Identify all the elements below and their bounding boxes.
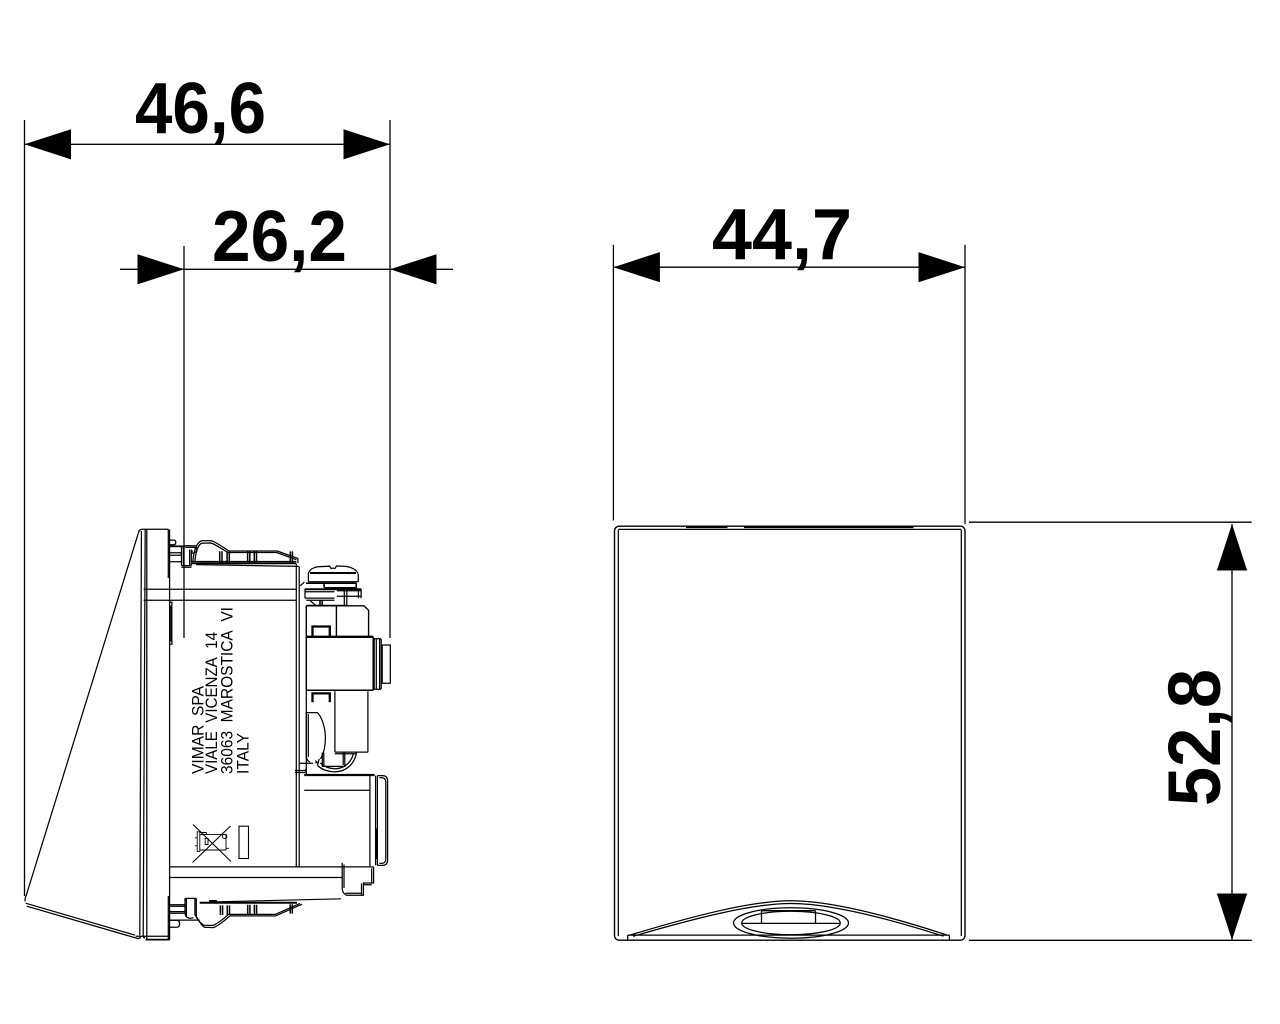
svg-text:46,6: 46,6 bbox=[135, 68, 266, 149]
svg-text:26,2: 26,2 bbox=[212, 196, 347, 277]
svg-text:ITALY: ITALY bbox=[234, 733, 252, 774]
svg-text:52,8: 52,8 bbox=[1153, 669, 1236, 806]
svg-text:44,7: 44,7 bbox=[712, 194, 852, 275]
